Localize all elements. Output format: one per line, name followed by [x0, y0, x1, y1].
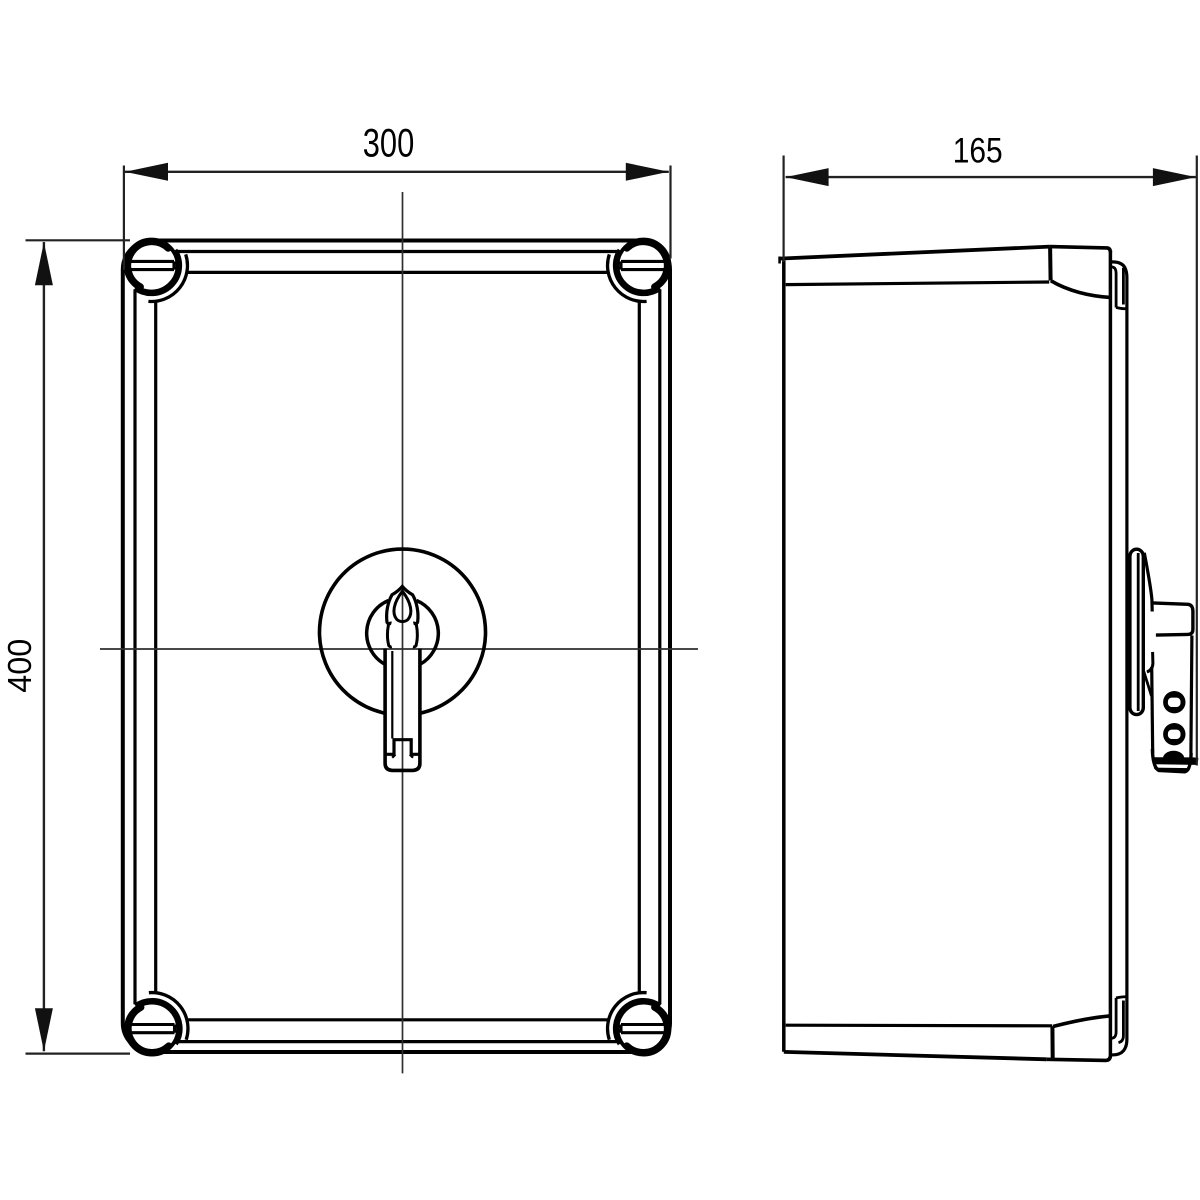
- svg-text:300: 300: [363, 122, 415, 166]
- svg-text:400: 400: [2, 639, 39, 693]
- svg-text:165: 165: [953, 132, 1003, 171]
